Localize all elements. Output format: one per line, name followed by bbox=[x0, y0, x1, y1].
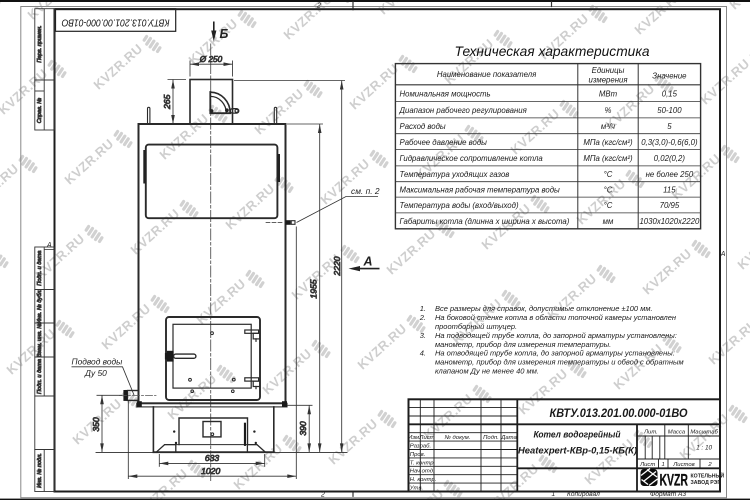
svg-text:м³/ч: м³/ч bbox=[601, 122, 615, 131]
svg-text:Н. контр.: Н. контр. bbox=[410, 477, 437, 483]
svg-text:Подвод воды: Подвод воды bbox=[72, 357, 123, 367]
svg-text:Подп. и дата: Подп. и дата bbox=[37, 251, 43, 286]
svg-text:Копировал: Копировал bbox=[567, 491, 600, 498]
svg-text:1: 1 bbox=[662, 462, 665, 468]
svg-text:1.: 1. bbox=[420, 304, 426, 313]
svg-text:633: 633 bbox=[205, 453, 220, 463]
svg-text:Максимальная рабочая температу: Максимальная рабочая температура воды bbox=[400, 186, 561, 195]
svg-text:390: 390 bbox=[298, 421, 308, 436]
svg-text:Разраб.: Разраб. bbox=[410, 444, 431, 450]
svg-text:0,3(3,0)-0,6(6,0): 0,3(3,0)-0,6(6,0) bbox=[641, 138, 698, 147]
svg-text:А: А bbox=[46, 242, 52, 249]
svg-text:350: 350 bbox=[91, 417, 101, 432]
svg-text:проотборный штуцер.: проотборный штуцер. bbox=[435, 322, 517, 331]
svg-text:Нач.отд.: Нач.отд. bbox=[410, 469, 435, 475]
svg-text:Heatexpert-КВр-0,15-КБ(К): Heatexpert-КВр-0,15-КБ(К) bbox=[518, 445, 637, 456]
svg-text:Пров.: Пров. bbox=[410, 452, 426, 458]
svg-text:5: 5 bbox=[667, 122, 672, 131]
svg-text:265: 265 bbox=[162, 94, 172, 110]
svg-text:Значение: Значение bbox=[652, 72, 687, 81]
svg-text:Инв. № подл.: Инв. № подл. bbox=[37, 453, 43, 488]
svg-text:КОТЕЛЬНЫЙ: КОТЕЛЬНЫЙ bbox=[691, 472, 725, 480]
svg-text:На подводящей трубе котла, до: На подводящей трубе котла, до запорной а… bbox=[435, 331, 677, 340]
svg-text:KVZR: KVZR bbox=[660, 471, 689, 489]
svg-text:1: 1 bbox=[552, 491, 556, 498]
svg-text:Наименование показателя: Наименование показателя bbox=[437, 70, 537, 79]
svg-text:Лист: Лист bbox=[418, 435, 434, 441]
svg-text:Лит.: Лит. bbox=[643, 429, 658, 435]
svg-text:2: 2 bbox=[320, 492, 325, 499]
svg-text:Ду 50: Ду 50 bbox=[84, 368, 107, 378]
svg-text:%: % bbox=[605, 106, 612, 115]
svg-text:не более 250: не более 250 bbox=[646, 170, 694, 179]
svg-text:°С: °С bbox=[604, 170, 613, 179]
svg-text:Инв. № дубл.: Инв. № дубл. bbox=[37, 289, 43, 323]
svg-text:Лист: Лист bbox=[639, 462, 655, 468]
svg-text:На боковой стенке котла в обла: На боковой стенке котла в области топочн… bbox=[435, 313, 676, 322]
svg-text:ЗАВОД РЭП: ЗАВОД РЭП bbox=[691, 480, 722, 486]
svg-text:Подп.: Подп. bbox=[483, 435, 499, 441]
svg-text:Все размеры для справок, допус: Все размеры для справок, допустимые откл… bbox=[435, 304, 653, 313]
svg-text:МПа (кгс/см²): МПа (кгс/см²) bbox=[583, 154, 633, 163]
svg-text:1955: 1955 bbox=[308, 279, 318, 298]
svg-text:Масштаб: Масштаб bbox=[690, 429, 718, 435]
svg-text:Б: Б bbox=[220, 27, 229, 41]
svg-text:Взам. инв. №: Взам. инв. № bbox=[37, 323, 43, 358]
svg-text:Температура воды (вход/выход): Температура воды (вход/выход) bbox=[400, 201, 519, 210]
svg-text:измерения: измерения bbox=[588, 76, 628, 85]
svg-text:Подп. и дата: Подп. и дата bbox=[37, 359, 43, 394]
svg-text:мм: мм bbox=[603, 217, 614, 226]
svg-text:клапаном Ду не менее 40 мм.: клапаном Ду не менее 40 мм. bbox=[435, 367, 539, 376]
svg-text:1030х1020х2220: 1030х1020х2220 bbox=[639, 217, 699, 226]
svg-text:манометр, прибор для измерения: манометр, прибор для измерения температу… bbox=[435, 358, 684, 367]
svg-text:А: А bbox=[363, 255, 373, 269]
svg-text:Листов: Листов bbox=[672, 462, 694, 468]
svg-text:МВт: МВт bbox=[599, 89, 618, 98]
svg-text:70/95: 70/95 bbox=[660, 201, 680, 210]
svg-text:Масса: Масса bbox=[668, 429, 686, 435]
svg-text:см. п. 2: см. п. 2 bbox=[351, 186, 380, 196]
svg-text:Рабочее давление воды: Рабочее давление воды bbox=[400, 138, 488, 147]
svg-text:Температура уходящих газов: Температура уходящих газов bbox=[400, 170, 510, 179]
svg-text:2.: 2. bbox=[419, 313, 426, 322]
svg-text:Техническая характеристика: Техническая характеристика bbox=[455, 44, 650, 59]
svg-text:3.: 3. bbox=[420, 331, 426, 340]
svg-text:Т. контр.: Т. контр. bbox=[410, 460, 435, 466]
svg-text:0,02(0,2): 0,02(0,2) bbox=[654, 154, 686, 163]
svg-text:50-100: 50-100 bbox=[657, 106, 682, 115]
svg-text:°С: °С bbox=[604, 201, 613, 210]
svg-text:115: 115 bbox=[663, 186, 676, 195]
svg-text:Расход воды: Расход воды bbox=[400, 122, 446, 131]
svg-text:°С: °С bbox=[604, 186, 613, 195]
svg-text:Котел водогрейный: Котел водогрейный bbox=[534, 429, 621, 440]
svg-text:МПа (кгс/см²): МПа (кгс/см²) bbox=[583, 138, 633, 147]
svg-text:манометр, прибор для измерения: манометр, прибор для измерения температу… bbox=[435, 340, 611, 349]
svg-text:Номинальная мощность: Номинальная мощность bbox=[400, 89, 491, 98]
svg-text:А: А bbox=[720, 251, 726, 258]
svg-text:4.: 4. bbox=[420, 349, 426, 358]
svg-text:Гидравлическое сопротивление к: Гидравлическое сопротивление котла bbox=[400, 154, 544, 163]
svg-text:2220: 2220 bbox=[332, 256, 342, 276]
svg-text:2: 2 bbox=[707, 462, 712, 468]
svg-text:Формат А3: Формат А3 bbox=[650, 491, 686, 498]
svg-text:Справ. №: Справ. № bbox=[37, 98, 43, 123]
svg-text:Дата: Дата bbox=[500, 435, 517, 441]
svg-text:Утв.: Утв. bbox=[409, 486, 423, 492]
svg-text:2: 2 bbox=[316, 3, 321, 10]
svg-text:Диапазон рабочего регулировани: Диапазон рабочего регулирования bbox=[399, 106, 528, 115]
svg-text:На отводящей трубе котла, до з: На отводящей трубе котла, до запорной ар… bbox=[435, 349, 675, 358]
svg-text:КВТУ.013.201.00.000-01ВО: КВТУ.013.201.00.000-01ВО bbox=[61, 17, 169, 28]
svg-text:№ докум.: № докум. bbox=[445, 434, 471, 441]
svg-text:Перв. примен.: Перв. примен. bbox=[37, 25, 43, 62]
svg-text:1 : 10: 1 : 10 bbox=[696, 445, 712, 452]
svg-text:Габариты котла (длинна х ширин: Габариты котла (длинна х ширина х высота… bbox=[400, 217, 570, 226]
svg-text:0,15: 0,15 bbox=[662, 89, 678, 98]
svg-text:Ø 250: Ø 250 bbox=[199, 54, 223, 64]
svg-text:КВТУ.013.201.00.000-01ВО: КВТУ.013.201.00.000-01ВО bbox=[550, 408, 688, 420]
svg-text:1020: 1020 bbox=[201, 466, 220, 476]
svg-text:Единицы: Единицы bbox=[592, 66, 625, 75]
